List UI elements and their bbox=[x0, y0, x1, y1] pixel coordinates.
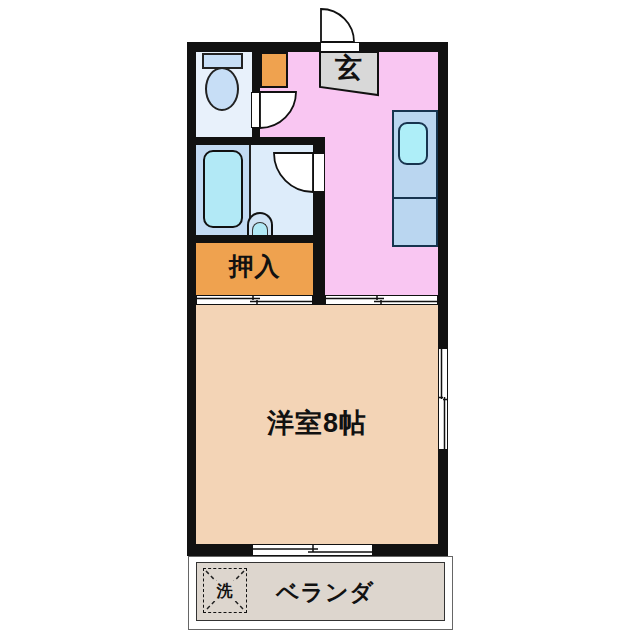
toilet-icon bbox=[205, 67, 239, 111]
entrance-door-swing-icon bbox=[321, 9, 354, 42]
kitchen-counter-divider bbox=[392, 197, 438, 199]
sliding-door-closet bbox=[196, 295, 313, 305]
window-bottom bbox=[252, 544, 373, 556]
window-right bbox=[438, 348, 448, 450]
washroom-doorway bbox=[313, 153, 325, 192]
closet-label: 押入 bbox=[196, 252, 313, 280]
washbasin-bowl bbox=[252, 222, 268, 235]
wall-closet-right bbox=[313, 243, 325, 305]
sliding-door-kitchen bbox=[325, 295, 438, 305]
shoe-cabinet bbox=[260, 52, 288, 88]
wall-right bbox=[438, 42, 448, 556]
bathtub-icon bbox=[203, 150, 243, 228]
genkan-label: 玄 bbox=[320, 53, 378, 83]
wall-bath-bottom bbox=[196, 235, 325, 243]
veranda-label: ベランダ bbox=[250, 579, 400, 605]
wall-top bbox=[187, 42, 448, 52]
entrance-doorway bbox=[320, 42, 360, 52]
wall-toilet-bath bbox=[196, 137, 325, 145]
toilet-doorway bbox=[251, 92, 260, 128]
floorplan-canvas: 玄 押入 洋室8帖 ベランダ 洗 bbox=[0, 0, 640, 640]
wall-left bbox=[187, 42, 196, 556]
kitchen-sink-icon bbox=[398, 122, 428, 165]
western-room-label: 洋室8帖 bbox=[196, 408, 438, 438]
washing-machine-label: 洗 bbox=[213, 581, 237, 601]
